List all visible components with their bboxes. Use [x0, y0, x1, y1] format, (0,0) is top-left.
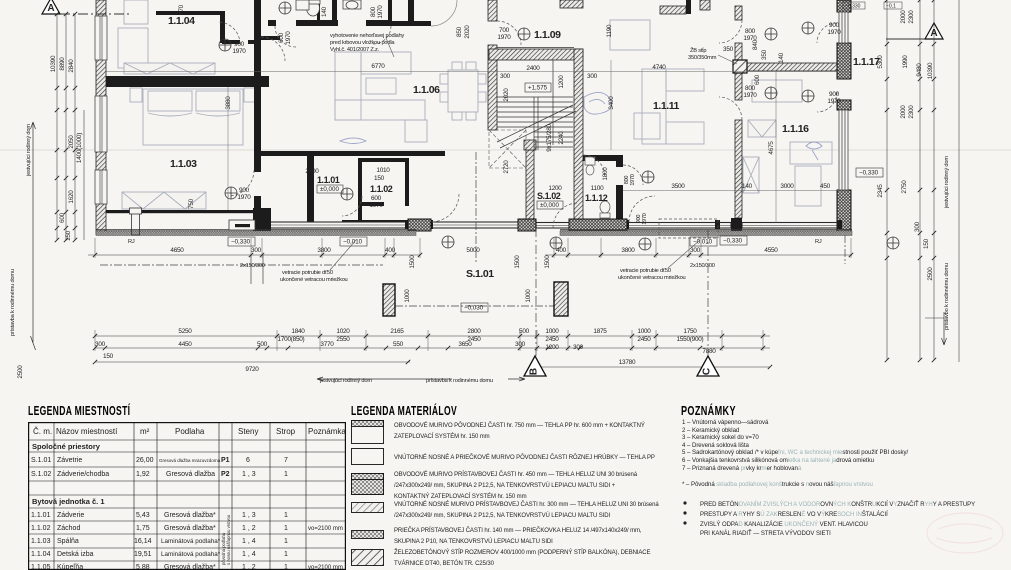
svg-text:10390: 10390 — [50, 55, 57, 72]
svg-text:1400(1000): 1400(1000) — [76, 133, 83, 163]
svg-text:140: 140 — [321, 6, 328, 17]
svg-text:1100: 1100 — [591, 185, 604, 192]
svg-text:ZATEPLOVACÍ SYSTÉM hr. 150 mm: ZATEPLOVACÍ SYSTÉM hr. 150 mm — [394, 433, 490, 440]
svg-text:2300: 2300 — [908, 105, 915, 119]
svg-text:1.1.16: 1.1.16 — [782, 123, 809, 135]
svg-text:vetracie potrubie dť50: vetracie potrubie dť50 — [282, 270, 333, 276]
svg-text:Názov miestností: Názov miestností — [56, 427, 118, 436]
svg-text:1.1.12: 1.1.12 — [585, 193, 608, 203]
svg-text:7: 7 — [284, 457, 288, 464]
svg-text:2x150/300: 2x150/300 — [240, 263, 265, 269]
svg-text:Laminátová podlaha*: Laminátová podlaha* — [161, 538, 221, 545]
svg-text:6: 6 — [246, 457, 250, 464]
svg-text:Podlaha: Podlaha — [175, 427, 205, 436]
svg-text:Zádverie: Zádverie — [57, 512, 84, 519]
svg-text:2000: 2000 — [900, 10, 907, 24]
svg-text:1: 1 — [284, 564, 288, 570]
svg-text:800: 800 — [745, 85, 756, 92]
svg-text:150: 150 — [103, 353, 114, 360]
svg-text:500: 500 — [257, 341, 268, 348]
svg-text:−0,010: −0,010 — [343, 239, 363, 246]
svg-text:Záchod: Záchod — [57, 525, 80, 532]
svg-text:4 – Drevená soklová lišta: 4 – Drevená soklová lišta — [682, 442, 749, 449]
svg-text:Vyhl.č. 401/2007 Z.z.: Vyhl.č. 401/2007 Z.z. — [330, 47, 380, 53]
svg-text:350/350mm: 350/350mm — [688, 55, 717, 61]
svg-text:jestvujúci rodinný dom: jestvujúci rodinný dom — [944, 156, 950, 209]
svg-text:RJ: RJ — [128, 239, 135, 245]
svg-text:300: 300 — [573, 344, 584, 351]
svg-text:2020: 2020 — [464, 25, 471, 39]
svg-text:5300: 5300 — [877, 55, 884, 69]
svg-text:1000: 1000 — [637, 328, 651, 335]
svg-text:1.1.11: 1.1.11 — [653, 100, 680, 112]
svg-text:PRI KANÁL RIADIŤ — STRETA VÝ: PRI KANÁL RIADIŤ — STRETA VÝVODOV SIETI — [700, 529, 831, 537]
svg-text:900: 900 — [239, 187, 250, 194]
svg-text:1: 1 — [284, 551, 288, 558]
svg-text:P2: P2 — [221, 471, 230, 478]
svg-text:1 , 2: 1 , 2 — [242, 525, 256, 532]
svg-text:1.1.06: 1.1.06 — [413, 84, 440, 96]
svg-text:S.1.01: S.1.01 — [466, 268, 494, 280]
svg-text:1840: 1840 — [291, 328, 305, 335]
svg-text:400: 400 — [556, 247, 567, 254]
svg-text:7 – Priznaná drevená prvky k: 7 – Priznaná drevená prvky krmer hoblova… — [682, 465, 802, 472]
svg-text:RJ: RJ — [815, 239, 822, 245]
svg-text:9x175/280: 9x175/280 — [546, 124, 553, 152]
svg-text:vetracie potrubie dť50: vetracie potrubie dť50 — [620, 268, 671, 274]
svg-text:P1: P1 — [221, 457, 230, 464]
svg-text:−0,330: −0,330 — [845, 4, 861, 10]
svg-text:8890: 8890 — [59, 57, 66, 71]
svg-text:900: 900 — [829, 91, 840, 98]
svg-text:1200: 1200 — [545, 344, 559, 351]
svg-text:400: 400 — [385, 247, 396, 254]
svg-text:1020: 1020 — [336, 328, 350, 335]
svg-text:1800: 1800 — [602, 167, 609, 181]
svg-text:SKUPINA 2 P10, NA TENKOVRSTVÚ: SKUPINA 2 P10, NA TENKOVRSTVÚ LEPIACU MA… — [394, 538, 553, 545]
svg-text:9720: 9720 — [245, 366, 259, 373]
svg-text:150: 150 — [923, 238, 930, 249]
svg-text:1.1.05: 1.1.05 — [31, 564, 51, 570]
svg-text:1: 1 — [284, 512, 288, 519]
svg-text:1970: 1970 — [237, 194, 251, 201]
svg-text:1970: 1970 — [642, 213, 648, 224]
svg-text:150: 150 — [65, 230, 72, 241]
svg-text:1550(900): 1550(900) — [677, 336, 704, 343]
svg-text:prístavbo k rodinnému domu: prístavbo k rodinnému domu — [944, 263, 950, 330]
svg-text:OBVODOVÉ MURIVO PRÍSTAVBOVEJ Č: OBVODOVÉ MURIVO PRÍSTAVBOVEJ ČASTI hr. 4… — [394, 471, 638, 478]
svg-text:/247x300x249/ mm, SKUPINA 2 P1: /247x300x249/ mm, SKUPINA 2 P12,5, NA TE… — [394, 512, 610, 519]
svg-text:1 , 3: 1 , 3 — [242, 471, 256, 478]
svg-text:2345: 2345 — [877, 184, 884, 198]
svg-text:140: 140 — [778, 52, 785, 63]
svg-text:1.1.09: 1.1.09 — [534, 29, 561, 41]
svg-text:140: 140 — [742, 183, 753, 190]
svg-text:1970: 1970 — [827, 98, 841, 105]
svg-text:ukončené vetracou mriežkou: ukončené vetracou mriežkou — [618, 275, 686, 281]
svg-text:350: 350 — [723, 46, 734, 53]
svg-text:Závetrie: Závetrie — [57, 457, 82, 464]
svg-text:−0,030: −0,030 — [464, 305, 484, 312]
svg-text:1.1.03: 1.1.03 — [170, 158, 197, 170]
svg-text:600: 600 — [59, 212, 66, 223]
svg-text:/247x300x249/ mm, SKUPINA 2 P1: /247x300x249/ mm, SKUPINA 2 P12,5, NA TE… — [394, 482, 616, 489]
svg-text:700: 700 — [499, 27, 510, 34]
svg-text:Gresová dlažba: Gresová dlažba — [166, 471, 215, 478]
svg-text:1970: 1970 — [497, 34, 511, 41]
svg-text:1500: 1500 — [514, 255, 521, 269]
svg-text:1500: 1500 — [544, 255, 551, 269]
svg-text:840: 840 — [752, 39, 759, 50]
svg-text:1.1.02: 1.1.02 — [31, 525, 51, 532]
svg-text:1.1.02: 1.1.02 — [370, 184, 393, 194]
svg-text:−0,1: −0,1 — [886, 4, 896, 10]
svg-text:3000: 3000 — [780, 183, 794, 190]
svg-text:4650: 4650 — [170, 247, 184, 254]
svg-text:5,88: 5,88 — [136, 564, 150, 570]
svg-text:2450: 2450 — [545, 336, 559, 343]
svg-text:+1,575: +1,575 — [528, 85, 548, 92]
svg-text:jestvujúci rodinný dom: jestvujúci rodinný dom — [26, 124, 32, 177]
svg-text:−0,330: −0,330 — [859, 170, 879, 177]
svg-text:Poznámka: Poznámka — [308, 427, 346, 436]
svg-text:3800: 3800 — [317, 247, 331, 254]
svg-text:1200: 1200 — [548, 185, 562, 192]
svg-text:1000: 1000 — [525, 289, 532, 303]
svg-text:1875: 1875 — [593, 328, 607, 335]
svg-text:1 , 3: 1 , 3 — [242, 512, 256, 519]
svg-text:−0,330: −0,330 — [231, 239, 251, 246]
svg-text:S.1.02: S.1.02 — [31, 471, 51, 478]
svg-text:2750: 2750 — [901, 180, 908, 194]
svg-text:850: 850 — [456, 26, 463, 37]
svg-text:1970: 1970 — [743, 92, 757, 99]
svg-text:6 – Vonkajšia tenkovrstvá si: 6 – Vonkajšia tenkovrstvá silikónová omi… — [682, 457, 874, 464]
svg-text:5 – Sadrokartónový obklad /: 5 – Sadrokartónový obklad /* v kúpeľni, … — [682, 449, 908, 456]
svg-text:ZVISLÝ ODPAD KANALIZÁCIE UKONČ: ZVISLÝ ODPAD KANALIZÁCIE UKONČENÝ VENT. … — [700, 521, 868, 528]
svg-text:PRIEČKA PRÍSTAVBOVEJ ČASTI hr.: PRIEČKA PRÍSTAVBOVEJ ČASTI hr. 140 mm — … — [394, 527, 642, 534]
svg-text:1: 1 — [284, 538, 288, 545]
svg-text:1 , 2: 1 , 2 — [242, 564, 256, 570]
svg-text:7880: 7880 — [702, 348, 716, 355]
svg-text:±0,000: ±0,000 — [320, 186, 339, 193]
svg-text:900: 900 — [829, 22, 840, 29]
svg-text:300: 300 — [95, 341, 106, 348]
svg-text:pred krbovou vložkou podla: pred krbovou vložkou podla — [330, 40, 395, 46]
svg-text:Strop: Strop — [276, 427, 296, 436]
svg-text:1750: 1750 — [683, 328, 697, 335]
svg-text:300: 300 — [251, 247, 262, 254]
svg-text:Spoločné priestory: Spoločné priestory — [32, 442, 101, 451]
svg-text:1000: 1000 — [404, 289, 411, 303]
svg-text:2240: 2240 — [558, 131, 565, 145]
svg-text:2550: 2550 — [336, 336, 350, 343]
svg-text:800: 800 — [745, 28, 756, 35]
svg-text:1190: 1190 — [606, 24, 613, 37]
svg-text:1000: 1000 — [545, 328, 559, 335]
svg-text:3800: 3800 — [621, 247, 635, 254]
svg-text:1700(850): 1700(850) — [278, 336, 305, 343]
svg-text:Gresová dlažba mrazuvzdorná: Gresová dlažba mrazuvzdorná — [159, 458, 221, 463]
svg-text:−0,330: −0,330 — [723, 238, 743, 245]
svg-text:2450: 2450 — [637, 336, 651, 343]
svg-text:1: 1 — [284, 471, 288, 478]
svg-text:2500: 2500 — [17, 365, 24, 379]
svg-text:300: 300 — [587, 73, 598, 80]
svg-text:* – Pôvodná skladba podlahov: * – Pôvodná skladba podlahovej konštrukc… — [682, 481, 873, 488]
svg-text:350: 350 — [761, 49, 768, 60]
svg-text:s novou nášľapnou vrstvou: s novou nášľapnou vrstvou — [226, 514, 231, 565]
svg-text:Detská izba: Detská izba — [57, 551, 94, 558]
svg-text:KONTAKTNÝ ZATEPLOVACÍ SYSTÉM h: KONTAKTNÝ ZATEPLOVACÍ SYSTÉM hr. 150 mm — [394, 493, 527, 500]
svg-text:550: 550 — [393, 341, 404, 348]
svg-text:Spálňa: Spálňa — [57, 538, 79, 545]
svg-text:16,14: 16,14 — [134, 538, 152, 545]
svg-text:600: 600 — [371, 195, 382, 202]
svg-text:Zádverie/chodba: Zádverie/chodba — [57, 471, 109, 478]
svg-text:Gresová dlažba*: Gresová dlažba* — [164, 564, 216, 570]
svg-text:500: 500 — [519, 328, 530, 335]
svg-text:300: 300 — [914, 221, 921, 232]
svg-text:Č. m.: Č. m. — [33, 427, 52, 436]
svg-text:vyhotovenie nehorľavej podlahy: vyhotovenie nehorľavej podlahy — [330, 33, 404, 39]
svg-text:VNÚTORNÉ NOSNÉ MURIVO PRÍSTAVB: VNÚTORNÉ NOSNÉ MURIVO PRÍSTAVBOVEJ ČASTI… — [394, 501, 659, 508]
svg-text:470: 470 — [178, 4, 185, 15]
svg-text:19,51: 19,51 — [134, 551, 152, 558]
svg-text:TVÁRNICE DT40, BETÓN TR. C25/3: TVÁRNICE DT40, BETÓN TR. C25/30 — [394, 560, 495, 567]
svg-text:2300: 2300 — [908, 10, 915, 24]
svg-text:1970: 1970 — [232, 48, 246, 55]
svg-text:ŽELEZOBETÓNOVÝ STĺP ROZMEROV 4: ŽELEZOBETÓNOVÝ STĺP ROZMEROV 400/1000 mm… — [394, 548, 651, 556]
svg-text:vo=2100 mm: vo=2100 mm — [308, 565, 343, 570]
svg-text:150: 150 — [374, 175, 385, 182]
svg-text:m²: m² — [140, 427, 150, 436]
svg-text:13780: 13780 — [619, 359, 636, 366]
svg-text:3 – Keramický sokel do v=70: 3 – Keramický sokel do v=70 — [682, 434, 759, 441]
svg-text:2500: 2500 — [927, 267, 934, 281]
svg-text:1500: 1500 — [409, 255, 416, 269]
svg-text:2020: 2020 — [503, 88, 510, 102]
svg-text:750: 750 — [188, 198, 195, 209]
svg-text:3650: 3650 — [458, 341, 472, 348]
svg-text:800: 800 — [370, 6, 377, 17]
svg-text:5,43: 5,43 — [136, 512, 150, 519]
svg-text:3880: 3880 — [225, 96, 232, 110]
svg-text:2 – Keramický obklad: 2 – Keramický obklad — [682, 427, 739, 434]
svg-text:5250: 5250 — [178, 328, 192, 335]
svg-text:2x150/300: 2x150/300 — [690, 263, 715, 269]
svg-text:4675: 4675 — [768, 141, 775, 155]
svg-text:prístavba k rodinnému domu: prístavba k rodinnému domu — [10, 269, 16, 336]
svg-text:A: A — [47, 3, 54, 14]
svg-text:2840: 2840 — [68, 59, 75, 73]
svg-text:−0,010: −0,010 — [693, 239, 713, 246]
svg-text:1 , 4: 1 , 4 — [242, 551, 256, 558]
svg-text:1010: 1010 — [376, 167, 390, 174]
svg-text:300: 300 — [515, 341, 526, 348]
svg-text:300: 300 — [500, 73, 511, 80]
svg-text:Bytová jednotka č. 1: Bytová jednotka č. 1 — [32, 497, 105, 506]
svg-text:±0,000: ±0,000 — [540, 202, 559, 209]
svg-text:4450: 4450 — [178, 341, 192, 348]
svg-text:ŽB stĺp: ŽB stĺp — [690, 46, 706, 54]
svg-text:1 , 4: 1 , 4 — [242, 538, 256, 545]
svg-text:1,75: 1,75 — [136, 525, 150, 532]
svg-text:2050: 2050 — [68, 135, 75, 149]
svg-text:3500: 3500 — [671, 183, 685, 190]
svg-text:1.1.04: 1.1.04 — [31, 551, 51, 558]
svg-text:C: C — [702, 368, 713, 375]
svg-text:600: 600 — [754, 74, 761, 85]
svg-text:vo=2100 mm: vo=2100 mm — [308, 526, 343, 532]
svg-text:ukončené vetracou mriežkou: ukončené vetracou mriežkou — [280, 277, 348, 283]
svg-text:3770: 3770 — [320, 341, 334, 348]
svg-text:5000: 5000 — [466, 247, 480, 254]
svg-text:3400: 3400 — [608, 96, 615, 110]
svg-text:26,00: 26,00 — [136, 457, 154, 464]
svg-text:2720: 2720 — [503, 160, 510, 174]
svg-text:2000: 2000 — [900, 105, 907, 119]
svg-text:1,92: 1,92 — [136, 471, 150, 478]
svg-text:VNÚTORNÉ NOSNÉ A PRIEČKOVÉ MUR: VNÚTORNÉ NOSNÉ A PRIEČKOVÉ MURIVO PÔVODN… — [394, 454, 655, 461]
svg-text:4550: 4550 — [764, 247, 778, 254]
svg-text:PRESTUPY A RYHY SÚ ZAKRESLENÉ: PRESTUPY A RYHY SÚ ZAKRESLENÉ VO VÝKRESO… — [700, 511, 888, 518]
svg-text:6770: 6770 — [371, 63, 385, 70]
svg-text:2800: 2800 — [305, 168, 319, 175]
svg-text:S.1.02: S.1.02 — [537, 191, 561, 201]
svg-text:2800: 2800 — [467, 328, 481, 335]
svg-text:1.1.04: 1.1.04 — [168, 15, 195, 27]
svg-text:1 – Vnútorná vápenno—sádrová: 1 – Vnútorná vápenno—sádrová — [682, 419, 769, 426]
svg-text:B: B — [529, 368, 540, 375]
svg-text:2400: 2400 — [526, 65, 540, 72]
svg-text:4740: 4740 — [652, 64, 666, 71]
svg-text:1970: 1970 — [369, 202, 383, 209]
svg-text:1.1.01: 1.1.01 — [317, 175, 340, 185]
svg-text:1970: 1970 — [630, 174, 636, 185]
svg-text:1990: 1990 — [902, 55, 909, 69]
svg-text:900: 900 — [234, 41, 245, 48]
svg-text:1200: 1200 — [558, 75, 565, 89]
svg-text:450: 450 — [820, 183, 831, 190]
svg-text:1970: 1970 — [285, 31, 292, 45]
svg-text:1620: 1620 — [68, 190, 75, 204]
svg-text:Gresová dlažba*: Gresová dlažba* — [164, 525, 216, 532]
svg-text:Laminátová podlaha*: Laminátová podlaha* — [161, 551, 221, 558]
svg-text:1970: 1970 — [827, 29, 841, 36]
svg-text:9480: 9480 — [916, 63, 923, 77]
svg-text:Steny: Steny — [238, 427, 258, 436]
svg-text:1970: 1970 — [377, 5, 384, 19]
svg-text:S.1.01: S.1.01 — [31, 457, 51, 464]
svg-text:Gresová dlažba*: Gresová dlažba* — [164, 512, 216, 519]
svg-text:1: 1 — [284, 525, 288, 532]
svg-text:1.1.03: 1.1.03 — [31, 538, 51, 545]
svg-text:1.1.01: 1.1.01 — [31, 512, 51, 519]
svg-text:Kúpeľňa: Kúpeľňa — [57, 564, 83, 570]
svg-text:300: 300 — [690, 247, 701, 254]
svg-text:10390: 10390 — [927, 62, 934, 79]
svg-text:OBVODOVÉ MURIVO PÔVODNEJ ČASTI: OBVODOVÉ MURIVO PÔVODNEJ ČASTI hr. 750 m… — [394, 422, 645, 429]
svg-text:2165: 2165 — [390, 328, 404, 335]
